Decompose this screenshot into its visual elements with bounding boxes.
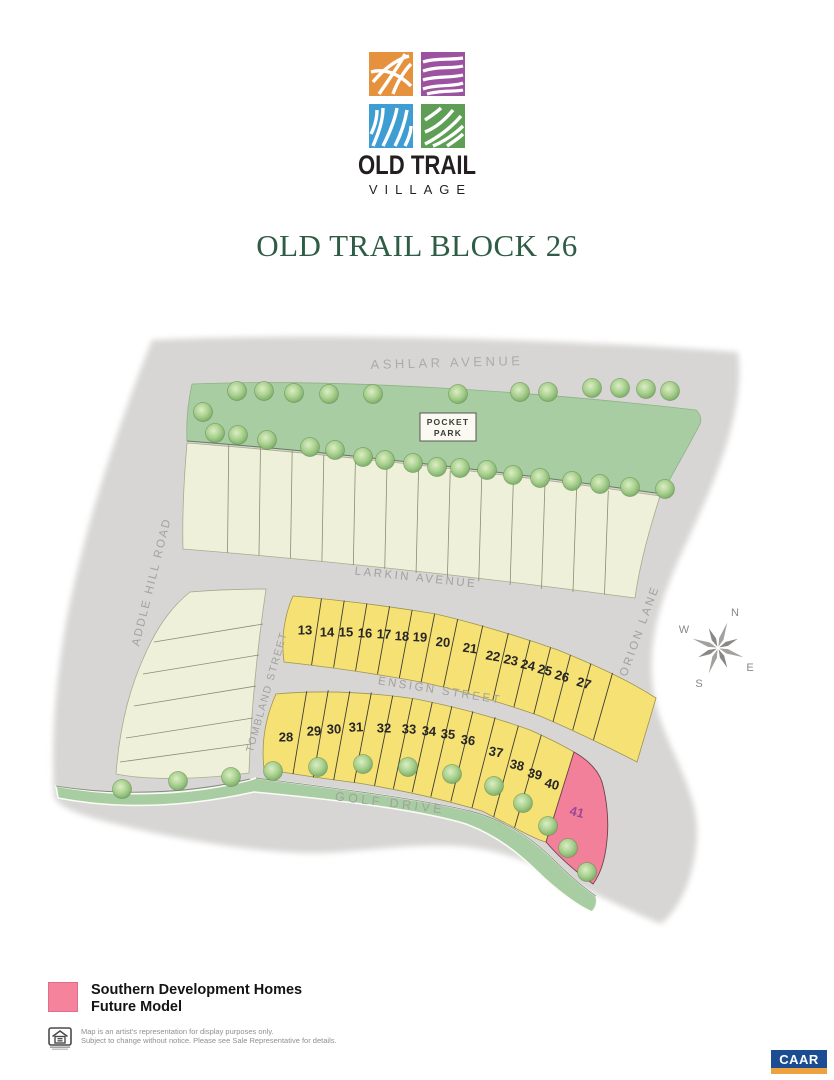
lot-15: 15 (339, 625, 353, 640)
tree-icon (591, 475, 610, 494)
tree-icon (611, 379, 630, 398)
map-disclaimer: Map is an artist's representation for di… (81, 1027, 337, 1045)
tree-icon (443, 765, 462, 784)
tree-icon (504, 466, 523, 485)
tree-icon (309, 758, 328, 777)
tree-icon (637, 380, 656, 399)
legend-label-line1: Southern Development Homes (91, 982, 302, 999)
tree-icon (451, 459, 470, 478)
lot-18: 18 (394, 628, 409, 644)
lot-28: 28 (279, 730, 293, 745)
tree-icon (539, 383, 558, 402)
old-trail-village-logo: OLD TRAIL VILLAGE (0, 52, 834, 197)
tree-icon (478, 461, 497, 480)
tree-icon (354, 448, 373, 467)
caar-wordmark: CAAR (779, 1052, 819, 1067)
lot-29: 29 (307, 723, 322, 738)
pocket-park-line1: POCKET (427, 417, 470, 427)
lot-36: 36 (460, 732, 476, 749)
disclaimer-line1: Map is an artist's representation for di… (81, 1027, 337, 1036)
lot-23: 23 (502, 651, 519, 669)
tree-icon (258, 431, 277, 450)
pocket-park-label: POCKET PARK (420, 413, 476, 441)
pocket-park-line2: PARK (434, 428, 462, 438)
tree-icon (485, 777, 504, 796)
lot-34: 34 (421, 723, 437, 739)
lot-16: 16 (358, 625, 373, 640)
tree-icon (222, 768, 241, 787)
tree-icon (583, 379, 602, 398)
tree-icon (661, 382, 680, 401)
disclaimer-line2: Subject to change without notice. Please… (81, 1036, 337, 1045)
lot-35: 35 (440, 726, 456, 742)
tree-icon (206, 424, 225, 443)
logo-subtitle: VILLAGE (0, 182, 834, 197)
lot-17: 17 (377, 626, 392, 641)
lot-37: 37 (488, 743, 505, 760)
caar-logo-stripe (771, 1068, 827, 1074)
legend-label: Southern Development Homes Future Model (91, 982, 302, 1016)
legend: Southern Development Homes Future Model … (48, 982, 608, 1051)
tree-icon (228, 382, 247, 401)
tree-icon (621, 478, 640, 497)
lot-31: 31 (349, 719, 364, 734)
lot-13: 13 (298, 623, 312, 638)
tree-icon (531, 469, 550, 488)
lot-33: 33 (402, 721, 417, 736)
tree-icon (514, 794, 533, 813)
lot-22: 22 (485, 647, 502, 664)
compass-s: S (695, 678, 702, 690)
equal-housing-opportunity-icon (48, 1027, 72, 1051)
tree-icon (320, 385, 339, 404)
tree-icon (169, 772, 188, 791)
tree-icon (559, 839, 578, 858)
tree-icon (229, 426, 248, 445)
lot-14: 14 (320, 625, 335, 640)
tree-icon (404, 454, 423, 473)
tree-icon (428, 458, 447, 477)
page-title: OLD TRAIL BLOCK 26 (0, 228, 834, 264)
tree-icon (301, 438, 320, 457)
tree-icon (511, 383, 530, 402)
lot-20: 20 (435, 634, 451, 650)
compass-rose-icon: N E S W (679, 607, 754, 690)
future-model-swatch (48, 982, 78, 1012)
lot-19: 19 (412, 629, 427, 645)
logo-wordmark: OLD TRAIL (75, 150, 759, 181)
tree-icon (563, 472, 582, 491)
logo-squares-icon (369, 52, 465, 148)
caar-logo-blue: CAAR (771, 1050, 827, 1068)
compass-n: N (731, 607, 739, 619)
compass-e: E (746, 662, 753, 674)
caar-logo: CAAR (771, 1050, 827, 1074)
lot-30: 30 (327, 721, 342, 736)
tree-icon (376, 451, 395, 470)
tree-icon (539, 817, 558, 836)
tree-icon (656, 480, 675, 499)
tree-icon (326, 441, 345, 460)
tree-icon (285, 384, 304, 403)
lot-21: 21 (462, 640, 478, 657)
compass-center (716, 646, 719, 649)
page: OLD TRAIL VILLAGE OLD TRAIL BLOCK 26 (0, 0, 834, 1080)
tree-icon (399, 758, 418, 777)
tree-icon (264, 762, 283, 781)
legend-label-line2: Future Model (91, 999, 302, 1016)
tree-icon (255, 382, 274, 401)
tree-icon (578, 863, 597, 882)
lot-32: 32 (377, 721, 391, 736)
tree-icon (364, 385, 383, 404)
tree-icon (449, 385, 468, 404)
site-map: 1314151617181920212223242526272829303132… (0, 330, 834, 930)
tree-icon (194, 403, 213, 422)
tree-icon (354, 755, 373, 774)
tree-icon (113, 780, 132, 799)
compass-w: W (679, 624, 690, 636)
